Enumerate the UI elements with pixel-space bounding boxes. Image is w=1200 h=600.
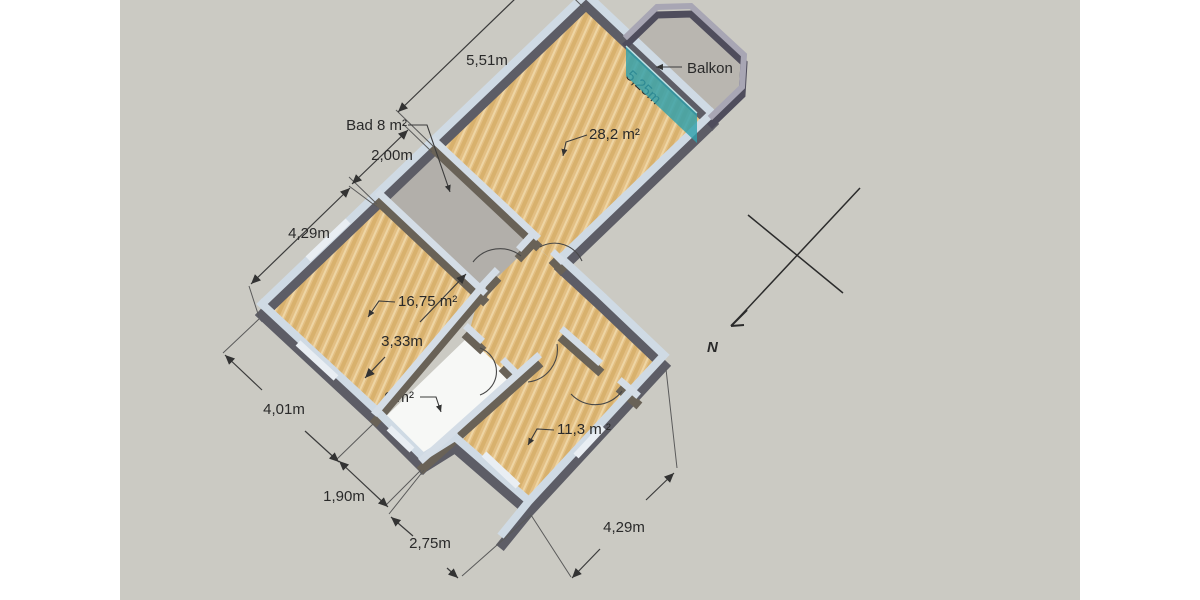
bedroom-small-width-dimension-label: 2,75m	[409, 535, 451, 552]
bedroom-large-label: 16,75 m²	[398, 293, 457, 310]
bedroom-large-width-dimension-label: 4,29m	[288, 225, 330, 242]
floor-plan-viewport: 6 m² 5,25m 5,51m	[0, 0, 1200, 600]
kitchen-width-dimension-label: 1,90m	[323, 488, 365, 505]
balcony-label: Balkon	[687, 60, 733, 77]
north-label: N	[707, 339, 719, 356]
bedroom-small-depth-dimension-label: 4,29m	[603, 519, 645, 536]
bedroom-small-label: 11,3 m ²	[557, 421, 611, 438]
bedroom-large-depth-dimension-label: 4,01m	[263, 401, 305, 418]
bathroom-width-dimension-label: 2,00m	[371, 147, 413, 164]
kitchen-depth-dimension-label: 3,33m	[381, 333, 423, 350]
bathroom-label: Bad 8 m²	[346, 117, 407, 134]
living-room-label: 28,2 m²	[589, 126, 640, 143]
living-width-dimension-label: 5,51m	[466, 52, 508, 69]
floor-plan-scene: 6 m² 5,25m 5,51m	[0, 0, 1200, 600]
